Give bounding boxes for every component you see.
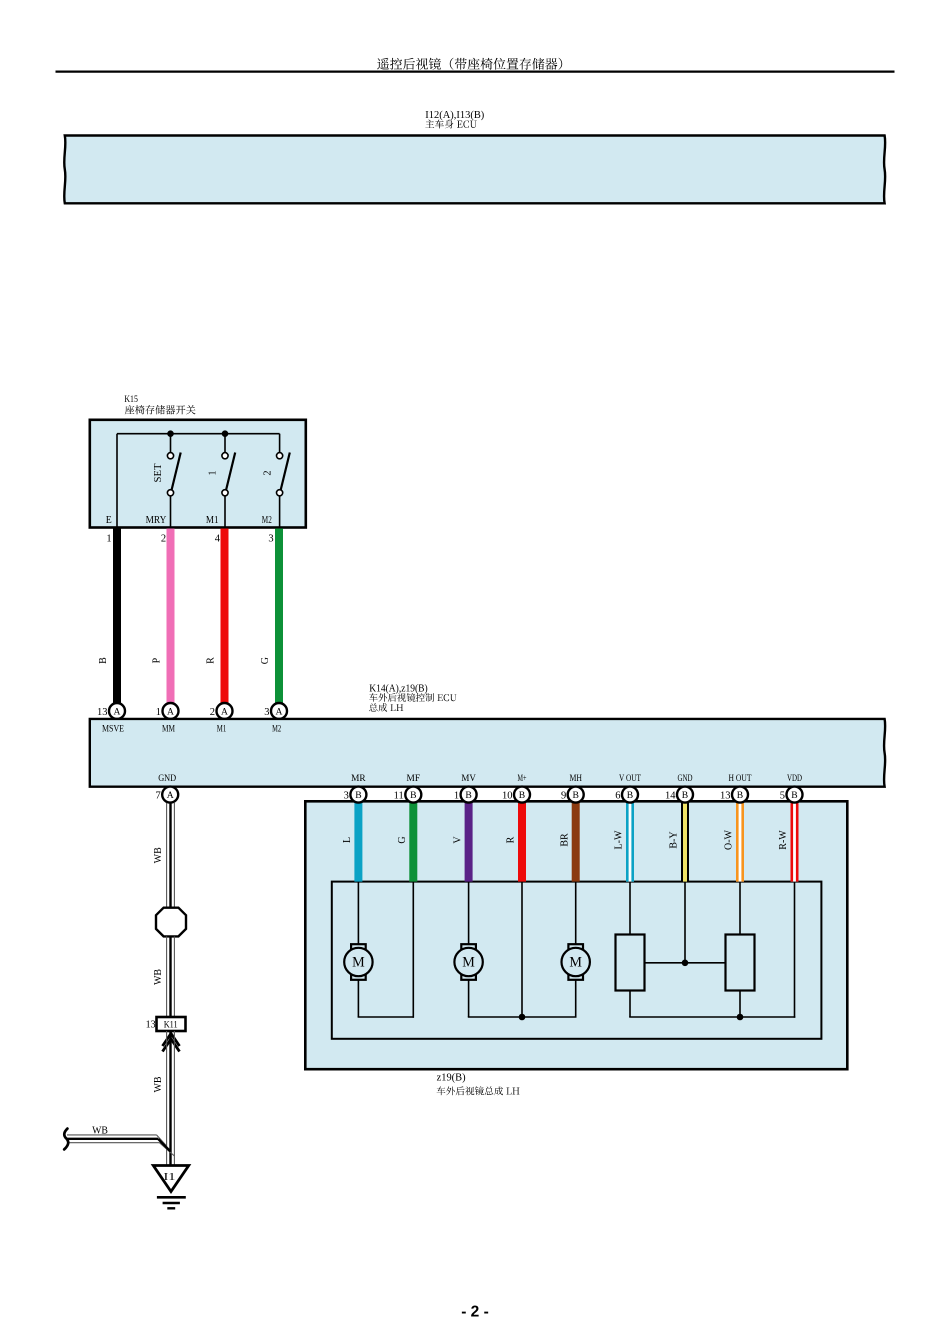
svg-text:MSVE: MSVE: [102, 724, 124, 734]
svg-text:A: A: [114, 706, 121, 717]
svg-text:3: 3: [344, 790, 349, 801]
svg-text:B: B: [737, 790, 743, 801]
svg-text:M2: M2: [262, 515, 272, 526]
svg-text:VDD: VDD: [787, 774, 802, 784]
svg-text:M: M: [352, 955, 365, 971]
svg-text:1: 1: [454, 790, 459, 801]
svg-text:K14(A),z19(B): K14(A),z19(B): [369, 683, 428, 694]
svg-text:WB: WB: [153, 1076, 164, 1092]
svg-text:MM: MM: [162, 724, 175, 734]
svg-text:I1: I1: [164, 1172, 176, 1183]
svg-text:B: B: [791, 790, 797, 801]
svg-text:13: 13: [146, 1020, 156, 1031]
svg-text:P: P: [151, 657, 162, 663]
svg-text:3: 3: [264, 707, 269, 718]
svg-text:10: 10: [502, 790, 513, 801]
svg-text:MR: MR: [351, 774, 366, 784]
svg-text:4: 4: [215, 533, 221, 544]
svg-text:M1: M1: [217, 724, 227, 734]
svg-text:WB: WB: [92, 1125, 108, 1136]
svg-text:BR: BR: [559, 833, 570, 847]
svg-text:GND: GND: [158, 774, 176, 784]
svg-text:B: B: [355, 790, 361, 801]
svg-text:B-Y: B-Y: [669, 831, 680, 848]
svg-text:A: A: [221, 706, 228, 717]
svg-text:I12(A),I13(B): I12(A),I13(B): [425, 110, 484, 121]
svg-text:B: B: [519, 790, 525, 801]
svg-text:B: B: [465, 790, 471, 801]
svg-text:9: 9: [561, 790, 566, 801]
svg-text:6: 6: [615, 790, 620, 801]
svg-text:R-W: R-W: [778, 830, 789, 850]
svg-text:M+: M+: [518, 774, 527, 784]
svg-text:MV: MV: [461, 774, 476, 784]
svg-text:E: E: [106, 515, 112, 526]
svg-text:G: G: [397, 836, 408, 843]
svg-text:1: 1: [208, 471, 219, 476]
svg-text:WB: WB: [153, 847, 164, 863]
svg-text:GND: GND: [678, 774, 693, 784]
svg-text:H OUT: H OUT: [729, 774, 752, 784]
svg-text:z19(B): z19(B): [437, 1072, 466, 1083]
svg-text:13: 13: [97, 707, 108, 718]
svg-text:MH: MH: [569, 774, 582, 784]
svg-text:2: 2: [161, 533, 166, 544]
svg-text:M: M: [569, 955, 582, 971]
svg-text:B: B: [410, 790, 416, 801]
svg-text:G: G: [260, 657, 271, 664]
svg-text:WB: WB: [153, 969, 164, 985]
svg-text:A: A: [167, 706, 174, 717]
svg-text:B: B: [682, 790, 688, 801]
svg-text:R: R: [205, 657, 216, 664]
svg-text:L-W: L-W: [614, 830, 625, 849]
svg-text:B: B: [98, 657, 109, 664]
svg-text:K11: K11: [164, 1021, 178, 1031]
svg-text:M1: M1: [206, 515, 219, 526]
svg-text:13: 13: [720, 790, 731, 801]
svg-text:R: R: [506, 836, 517, 843]
svg-text:K15: K15: [124, 394, 138, 405]
svg-text:SET: SET: [153, 464, 164, 483]
svg-text:11: 11: [394, 790, 404, 801]
svg-text:1: 1: [156, 707, 161, 718]
svg-text:A: A: [276, 706, 283, 717]
svg-text:14: 14: [665, 790, 676, 801]
svg-text:1: 1: [106, 533, 111, 544]
svg-text:MRY: MRY: [146, 515, 167, 526]
svg-text:A: A: [167, 790, 174, 801]
svg-text:5: 5: [780, 790, 785, 801]
svg-text:2: 2: [262, 471, 273, 476]
svg-text:O-W: O-W: [724, 829, 735, 850]
svg-text:M: M: [462, 955, 475, 971]
svg-text:2: 2: [210, 707, 215, 718]
svg-text:B: B: [627, 790, 633, 801]
svg-text:V: V: [452, 836, 463, 844]
svg-text:3: 3: [268, 533, 273, 544]
svg-text:MF: MF: [407, 774, 421, 784]
svg-text:7: 7: [155, 790, 160, 801]
svg-text:B: B: [572, 790, 578, 801]
svg-text:- 2 -: - 2 -: [461, 1303, 489, 1320]
svg-text:V OUT: V OUT: [619, 774, 641, 784]
svg-text:L: L: [342, 837, 353, 843]
svg-text:M2: M2: [272, 724, 281, 734]
